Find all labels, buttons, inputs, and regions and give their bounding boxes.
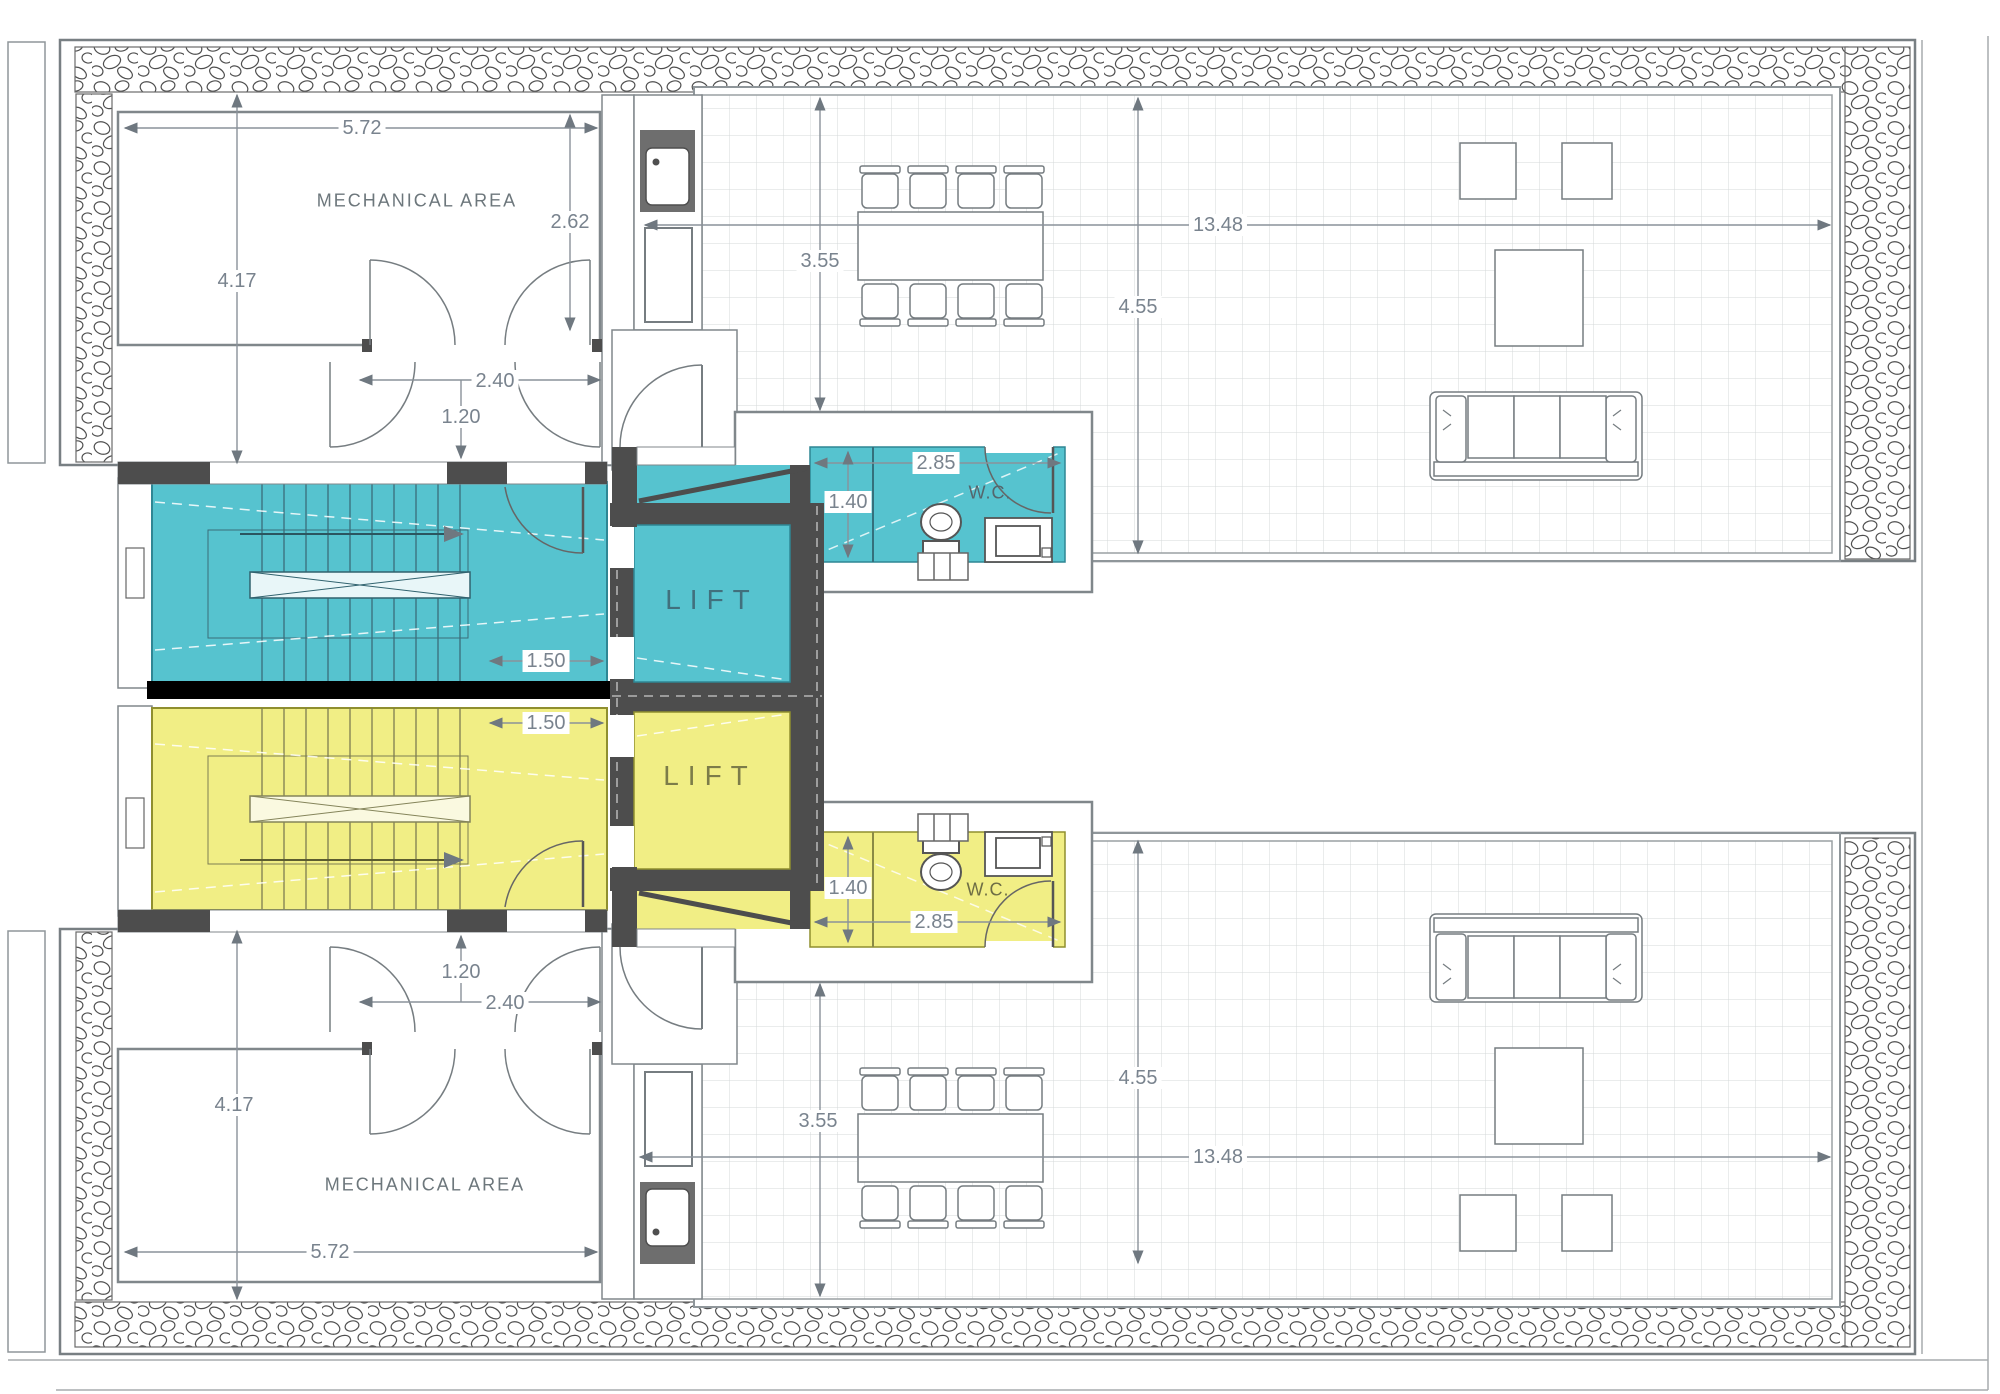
lift-shaft xyxy=(610,503,824,891)
vent-grille-bottom xyxy=(918,814,968,841)
toilet-bottom xyxy=(921,835,961,890)
stair-handrail-cyan xyxy=(250,572,470,598)
bench-bottom xyxy=(645,1072,692,1166)
toilet-top xyxy=(921,504,961,559)
stair-core-yellow xyxy=(118,706,607,916)
dim-terrace-width-top: 13.48 xyxy=(1189,214,1247,236)
dim-mech-width-top: 5.72 xyxy=(339,117,386,139)
dim-door-width-bottom: 2.40 xyxy=(482,992,529,1014)
dim-wc-width-bottom: 2.85 xyxy=(911,911,958,933)
vent-grille-top xyxy=(918,553,968,580)
dim-mech-height-bottom: 4.17 xyxy=(211,1094,258,1116)
plan-drawing xyxy=(0,0,2000,1394)
shower-bottom xyxy=(640,1182,695,1264)
dim-wc-depth-top: 1.40 xyxy=(825,491,872,513)
sink-top xyxy=(985,518,1052,562)
wc-label-bottom: W.C. xyxy=(967,880,1010,901)
mechanical-area-label-top: MECHANICAL AREA xyxy=(317,191,517,212)
unit-separator-band xyxy=(147,681,612,699)
sofa-top xyxy=(1430,392,1642,480)
mechanical-area-label-bottom: MECHANICAL AREA xyxy=(325,1175,525,1196)
bench-top xyxy=(645,228,692,322)
dim-mech-height-top: 4.17 xyxy=(214,270,261,292)
dim-stair-width-bottom: 1.50 xyxy=(523,712,570,734)
dim-mech-depth-top: 2.62 xyxy=(547,211,594,233)
wc-label-top: W.C. xyxy=(969,483,1012,504)
stair-handrail-yellow xyxy=(250,796,470,822)
dim-door-leaf-bottom: 1.20 xyxy=(438,961,485,983)
dim-terrace-front-top: 3.55 xyxy=(797,250,844,272)
dim-door-leaf-top: 1.20 xyxy=(438,406,485,428)
dim-terrace-width-bottom: 13.48 xyxy=(1189,1146,1247,1168)
dim-terrace-front-bottom: 3.55 xyxy=(795,1110,842,1132)
lift-label-top: LIFT xyxy=(665,584,759,616)
dim-stair-width-top: 1.50 xyxy=(523,650,570,672)
dim-mech-width-bottom: 5.72 xyxy=(307,1241,354,1263)
dim-terrace-depth-top: 4.55 xyxy=(1115,296,1162,318)
sofa-bottom xyxy=(1430,914,1642,1002)
left-parapet-top xyxy=(8,42,45,463)
dim-door-width-top: 2.40 xyxy=(472,370,519,392)
dim-wc-width-top: 2.85 xyxy=(913,452,960,474)
lift-label-bottom: LIFT xyxy=(663,760,757,792)
shower-top xyxy=(640,130,695,212)
left-parapet-bottom xyxy=(8,931,45,1352)
dim-terrace-depth-bottom: 4.55 xyxy=(1115,1067,1162,1089)
floor-plan-canvas: MECHANICAL AREA MECHANICAL AREA LIFT LIF… xyxy=(0,0,2000,1394)
sink-bottom xyxy=(985,832,1052,876)
dim-wc-depth-bottom: 1.40 xyxy=(825,877,872,899)
